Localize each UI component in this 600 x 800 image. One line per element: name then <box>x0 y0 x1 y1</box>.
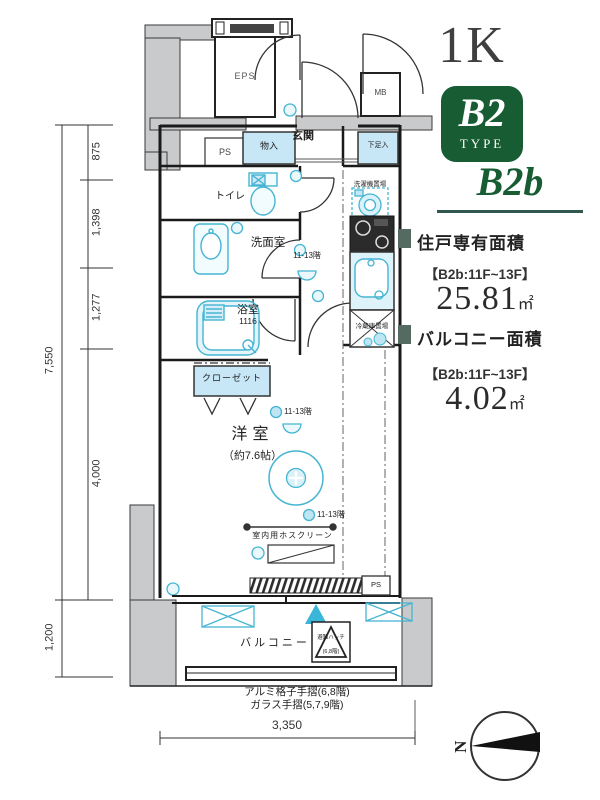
room-label-closet: クローゼット <box>196 373 268 383</box>
type-badge-main: B2 <box>441 90 523 136</box>
subtype-label: B2b <box>437 158 583 205</box>
room-label-bathroom: 浴室 <box>213 304 283 317</box>
room-label-toilet: トイレ <box>200 191 260 203</box>
room-label-getabako: 下足入 <box>358 142 398 150</box>
room-label-senmenshitsu: 洗面室 <box>223 237 313 250</box>
floor-plan-page: 1K B2 TYPE B2b 住戸専有面積 【B2b:11F~13F】 25.8… <box>0 0 600 800</box>
room-label-bath-size: 1116 <box>213 317 283 327</box>
room-label-main-room: 洋室 <box>210 426 295 444</box>
dim-1200: 1,200 <box>44 607 57 667</box>
kitchen-sink <box>350 252 394 310</box>
layout-type: 1K <box>430 16 514 75</box>
room-label-ps-top: PS <box>205 147 245 157</box>
sliding-door-sill <box>250 578 368 593</box>
unit-area-number: 25.81 <box>436 280 518 317</box>
unit-area-unit: ㎡ <box>518 296 534 313</box>
room-label-ps-balcony: PS <box>362 581 390 590</box>
hatch-label-1: 避難ハッチ <box>312 635 350 641</box>
eps-room <box>212 19 292 117</box>
balcony-area-bullet <box>398 325 411 344</box>
note-floors-a: 11-13階 <box>279 251 335 260</box>
balcony-area-number: 4.02 <box>445 380 509 417</box>
balcony-area-value: 4.02㎡ <box>395 380 575 418</box>
room-label-washer: 洗濯機置場 <box>344 181 396 188</box>
unit-area-bullet <box>398 229 411 248</box>
compass <box>471 712 540 780</box>
dim-875: 875 <box>91 121 104 181</box>
dim-3350: 3,350 <box>237 719 337 733</box>
note-floors-c: 11-13階 <box>317 510 345 519</box>
room-label-mb: MB <box>361 88 400 97</box>
room-label-eps: EPS <box>215 71 275 81</box>
note-floors-b: 11-13階 <box>268 407 328 416</box>
balcony-area-unit: ㎡ <box>509 396 525 413</box>
room-label-fridge: 冷蔵庫置場 <box>346 323 398 330</box>
dim-1398: 1,398 <box>91 192 104 252</box>
unit-area-title: 住戸専有面積 <box>417 229 525 254</box>
stove <box>350 216 394 252</box>
room-label-monoire: 物入 <box>243 141 295 151</box>
dim-7550: 7,550 <box>44 330 57 390</box>
hoscreen-line <box>244 524 336 530</box>
room-label-main-room-size: （約7.6帖） <box>205 450 300 463</box>
small-sign-blob <box>230 24 274 33</box>
type-badge-sub: TYPE <box>441 136 523 152</box>
type-badge: B2 TYPE <box>441 86 523 162</box>
subtype-underline <box>437 210 583 213</box>
compass-north-label: N <box>451 732 471 762</box>
balcony-arrow-icon <box>305 604 327 624</box>
balcony-area-title: バルコニー面積 <box>417 325 543 350</box>
note-rail-1: アルミ格子手摺(6,8階) <box>187 686 407 698</box>
unit-area-value: 25.81㎡ <box>395 280 575 318</box>
window-bench <box>252 545 334 563</box>
washing-machine <box>352 188 388 218</box>
note-rail-2: ガラス手摺(5,7,9階) <box>187 699 407 711</box>
dim-1277: 1,277 <box>91 277 104 337</box>
balcony-window <box>172 596 400 603</box>
hatch-label-2: (6,8階) <box>312 649 350 655</box>
dim-4000: 4,000 <box>91 443 104 503</box>
note-hoscreen: 室内用ホスクリーン <box>230 531 355 540</box>
